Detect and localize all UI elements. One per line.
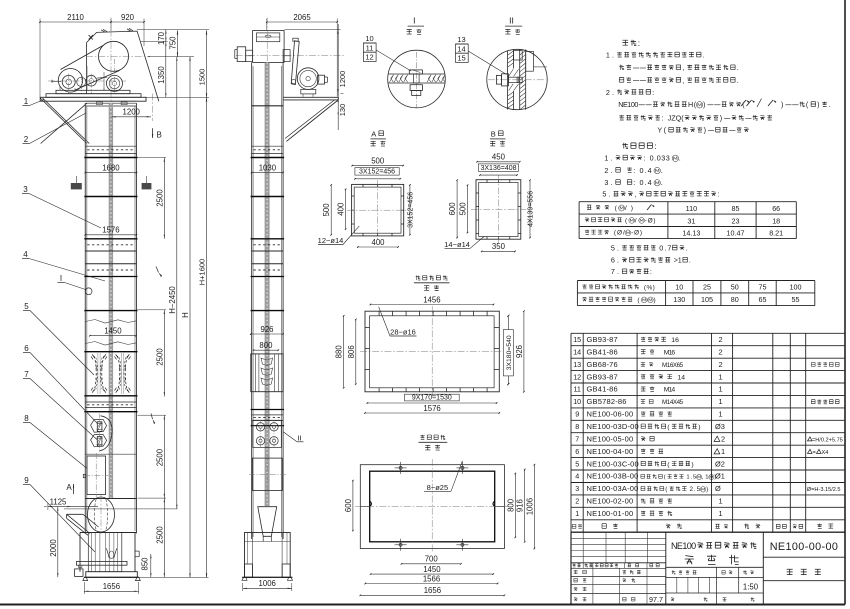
svg-text::: :: [633, 166, 635, 175]
svg-text:=: =: [813, 450, 816, 456]
svg-text:130: 130: [673, 295, 685, 304]
svg-text:1.5: 1.5: [686, 475, 697, 481]
svg-text:9: 9: [24, 476, 29, 485]
svg-text:.: .: [737, 76, 739, 85]
svg-text:B: B: [157, 131, 162, 140]
svg-text:.: .: [686, 244, 688, 253]
svg-text:,: ,: [682, 63, 684, 72]
svg-text:400: 400: [337, 202, 346, 216]
svg-text::: :: [643, 154, 645, 163]
svg-text:JZQ(: JZQ(: [668, 114, 685, 123]
svg-text:2: 2: [718, 335, 722, 344]
svg-text:920: 920: [121, 13, 135, 22]
svg-text:H−2450: H−2450: [168, 286, 177, 314]
svg-text:2500: 2500: [155, 526, 164, 544]
svg-text:110: 110: [686, 204, 697, 213]
svg-text:1: 1: [718, 372, 722, 381]
svg-text:85: 85: [732, 204, 740, 213]
svg-text:NE100-03A-00: NE100-03A-00: [587, 484, 639, 493]
svg-text:23: 23: [732, 216, 740, 225]
svg-text:10: 10: [675, 283, 683, 292]
svg-text:65: 65: [759, 295, 767, 304]
svg-text:55: 55: [792, 295, 800, 304]
svg-text:1: 1: [721, 447, 725, 456]
svg-text:66: 66: [772, 204, 780, 213]
svg-text:926: 926: [515, 345, 524, 358]
svg-text:2: 2: [575, 497, 579, 506]
svg-text:): ): [691, 461, 693, 468]
svg-text:): ): [703, 100, 705, 109]
svg-text:): ): [704, 126, 706, 135]
svg-text:750: 750: [169, 36, 178, 50]
svg-text:II: II: [298, 434, 302, 443]
svg-text:700: 700: [425, 555, 439, 564]
svg-text:3: 3: [23, 185, 28, 194]
svg-text:H+1600: H+1600: [197, 259, 206, 285]
svg-text:M16X65: M16X65: [662, 362, 684, 369]
svg-text:): ): [720, 114, 722, 123]
svg-text:I: I: [60, 274, 62, 283]
svg-text:15: 15: [573, 335, 581, 344]
svg-text:4X139=556: 4X139=556: [528, 191, 535, 227]
svg-text:GB5782-86: GB5782-86: [587, 397, 627, 406]
svg-text:/: /: [625, 205, 627, 212]
svg-text:75: 75: [759, 283, 767, 292]
svg-text:.: .: [737, 63, 739, 72]
svg-text:2065: 2065: [293, 13, 311, 22]
svg-text:8: 8: [575, 422, 579, 431]
svg-text:(Ø/: (Ø/: [614, 230, 625, 237]
svg-text:NE100-01-00: NE100-01-00: [587, 509, 634, 518]
svg-text:6: 6: [575, 447, 579, 456]
svg-text:1656: 1656: [424, 586, 441, 595]
svg-text:I: I: [413, 16, 415, 26]
svg-text:600: 600: [448, 202, 457, 216]
svg-text:(: (: [664, 475, 666, 481]
svg-text:2: 2: [718, 360, 722, 369]
svg-text:400: 400: [371, 238, 385, 247]
svg-text:9X170=1530: 9X170=1530: [412, 395, 452, 402]
svg-text:170: 170: [157, 31, 166, 45]
svg-text:2110: 2110: [67, 13, 84, 22]
svg-text:2: 2: [24, 135, 29, 144]
svg-text:H(: H(: [688, 100, 697, 109]
svg-text:GB68-76: GB68-76: [587, 360, 618, 369]
svg-text:GB41-86: GB41-86: [587, 347, 618, 356]
svg-text:500: 500: [322, 203, 331, 217]
svg-text:,: ,: [682, 76, 684, 85]
svg-text:NE100-06-00: NE100-06-00: [587, 410, 634, 419]
svg-text:31: 31: [687, 216, 695, 225]
svg-text:1450: 1450: [104, 327, 122, 336]
svg-text:6: 6: [24, 344, 29, 353]
svg-text:1:50: 1:50: [743, 583, 759, 592]
svg-text:.: .: [689, 256, 691, 265]
svg-text:926: 926: [260, 325, 273, 334]
svg-text:14.13: 14.13: [682, 229, 700, 238]
svg-text:B: B: [491, 129, 496, 138]
svg-text:1006: 1006: [259, 579, 276, 588]
svg-text:806: 806: [347, 345, 356, 358]
svg-text:2500: 2500: [155, 448, 164, 466]
svg-text:600: 600: [344, 498, 353, 512]
svg-text:8−ø25: 8−ø25: [427, 483, 448, 492]
svg-text::: :: [633, 178, 635, 187]
svg-text:5: 5: [575, 459, 579, 468]
svg-text:80: 80: [731, 295, 739, 304]
svg-text:-Ø): -Ø): [645, 217, 656, 224]
svg-text:2000: 2000: [49, 539, 58, 557]
svg-text:350: 350: [492, 242, 506, 251]
svg-text:/: /: [635, 217, 637, 224]
svg-text:3X136=408: 3X136=408: [480, 165, 516, 172]
svg-text:,1: ,1: [702, 475, 709, 481]
svg-text:3X180=540: 3X180=540: [506, 335, 513, 370]
svg-text:GB93-87: GB93-87: [587, 335, 618, 344]
svg-text:Ø3: Ø3: [715, 422, 725, 431]
svg-text:): ): [817, 100, 819, 109]
svg-text:): ): [706, 486, 708, 493]
svg-text:15: 15: [457, 54, 465, 63]
svg-text:H: H: [181, 312, 190, 318]
svg-text::: :: [650, 267, 652, 276]
svg-text:13: 13: [457, 35, 465, 44]
svg-text:1500: 1500: [197, 69, 206, 86]
svg-text:GB93-87: GB93-87: [587, 372, 618, 381]
svg-text:3: 3: [575, 484, 579, 493]
svg-text:1: 1: [24, 97, 29, 106]
svg-text:500: 500: [371, 156, 385, 165]
svg-text:12−ø14: 12−ø14: [318, 236, 344, 245]
svg-text:18: 18: [772, 216, 780, 225]
svg-text::: :: [652, 88, 654, 97]
svg-text:10.47: 10.47: [727, 229, 745, 238]
svg-text:NE100-00-00: NE100-00-00: [770, 541, 839, 553]
svg-text:Ø=H-3.15/2.5: Ø=H-3.15/2.5: [807, 487, 841, 493]
svg-text:.: .: [679, 154, 681, 163]
svg-text:1: 1: [718, 410, 722, 419]
svg-text:II: II: [509, 16, 514, 26]
svg-text:850: 850: [141, 557, 150, 571]
svg-text::: :: [654, 142, 656, 151]
svg-text:NE100-04-00: NE100-04-00: [587, 447, 634, 456]
svg-text:2: 2: [718, 347, 722, 356]
svg-text:NE100-03C-00: NE100-03C-00: [587, 459, 639, 468]
svg-text:800: 800: [259, 341, 273, 350]
svg-text:1: 1: [718, 397, 722, 406]
svg-text:0.4: 0.4: [640, 166, 652, 175]
svg-text:14: 14: [457, 45, 465, 54]
svg-text:NE100-03D-00: NE100-03D-00: [587, 422, 639, 431]
svg-text:>1: >1: [674, 256, 682, 265]
svg-text:1200: 1200: [123, 108, 141, 117]
svg-text:0.7: 0.7: [659, 244, 671, 253]
svg-text:): ): [631, 205, 633, 212]
svg-text:97.7: 97.7: [649, 595, 663, 604]
svg-text:=H/0.2+5.75: =H/0.2+5.75: [812, 437, 843, 443]
svg-text:GB41-86: GB41-86: [587, 385, 618, 394]
svg-text:Ø: Ø: [715, 484, 721, 493]
svg-text:12: 12: [365, 53, 373, 62]
svg-text:4: 4: [575, 472, 579, 481]
svg-text:1: 1: [718, 497, 722, 506]
svg-text:100: 100: [790, 283, 802, 292]
svg-text:11: 11: [366, 44, 374, 53]
svg-text:NE100-03B-00: NE100-03B-00: [587, 472, 639, 481]
svg-text:): ): [654, 297, 656, 304]
svg-text:1656: 1656: [103, 582, 120, 591]
svg-text:500: 500: [459, 202, 468, 216]
svg-text:(%): (%): [644, 284, 655, 291]
svg-text:4: 4: [23, 250, 28, 259]
svg-text:11: 11: [573, 385, 580, 394]
svg-text:1: 1: [718, 509, 722, 518]
svg-text:9: 9: [575, 410, 579, 419]
svg-text:1566: 1566: [423, 574, 440, 583]
svg-text:1: 1: [575, 509, 579, 518]
svg-text:M16: M16: [664, 349, 676, 356]
svg-text:50: 50: [731, 283, 739, 292]
svg-text:.: .: [661, 166, 663, 175]
svg-text:8.21: 8.21: [769, 229, 783, 238]
svg-text:25: 25: [703, 283, 711, 292]
svg-text:14: 14: [573, 347, 581, 356]
svg-text:14−ø14: 14−ø14: [444, 240, 470, 249]
svg-text:2: 2: [721, 434, 725, 443]
svg-text:Y: Y: [657, 126, 662, 135]
svg-text:12: 12: [573, 372, 581, 381]
svg-text:13: 13: [573, 360, 581, 369]
svg-text:A: A: [371, 129, 376, 138]
svg-text:NE100-05-00: NE100-05-00: [587, 434, 634, 443]
svg-text:NE100: NE100: [671, 541, 696, 551]
svg-text:.: .: [828, 100, 830, 109]
svg-text:3X152=456: 3X152=456: [407, 192, 414, 228]
svg-text:880: 880: [335, 345, 344, 359]
svg-text:Ø1: Ø1: [715, 472, 725, 481]
svg-text:1200: 1200: [338, 71, 347, 88]
svg-text:16: 16: [671, 337, 679, 344]
svg-text:1350: 1350: [157, 66, 166, 84]
svg-text:105: 105: [701, 295, 713, 304]
svg-text:5: 5: [24, 302, 29, 311]
svg-text:10: 10: [573, 397, 581, 406]
svg-text:1030: 1030: [259, 163, 277, 172]
svg-text:1006: 1006: [525, 498, 534, 515]
svg-text:Ø2: Ø2: [715, 459, 725, 468]
svg-text:0.033: 0.033: [650, 154, 670, 163]
svg-text:.: .: [703, 51, 705, 60]
svg-text:130: 130: [338, 104, 347, 117]
svg-text:): ): [698, 424, 700, 431]
svg-text:800: 800: [506, 498, 515, 512]
svg-text:28−ø16: 28−ø16: [390, 328, 416, 337]
svg-text:1: 1: [718, 385, 722, 394]
svg-text:7: 7: [24, 370, 29, 379]
svg-text:1680: 1680: [102, 163, 120, 172]
svg-text:): ): [781, 100, 783, 109]
svg-text:8: 8: [24, 414, 29, 423]
svg-text:2.5: 2.5: [690, 486, 701, 493]
svg-text:X4: X4: [822, 450, 829, 456]
svg-text:0.4: 0.4: [640, 178, 652, 187]
svg-text::: :: [718, 190, 720, 199]
svg-text:.: .: [661, 178, 663, 187]
svg-text:1576: 1576: [423, 404, 440, 413]
svg-text:,: ,: [634, 190, 636, 199]
svg-text:M14: M14: [664, 387, 676, 394]
svg-text:1576: 1576: [102, 226, 119, 235]
svg-text:-Ø): -Ø): [631, 230, 642, 237]
svg-text:450: 450: [492, 153, 506, 162]
svg-text:3X152=456: 3X152=456: [359, 169, 395, 176]
svg-text:M14X45: M14X45: [662, 399, 684, 406]
svg-text:2500: 2500: [155, 348, 164, 366]
svg-text:7: 7: [575, 434, 579, 443]
svg-text:1456: 1456: [423, 295, 440, 304]
svg-text:14: 14: [677, 374, 685, 381]
svg-text:10: 10: [365, 34, 373, 43]
svg-text::: :: [661, 114, 663, 123]
svg-text:NE100: NE100: [618, 100, 638, 109]
svg-text::: :: [638, 39, 640, 48]
svg-text:A: A: [66, 483, 72, 492]
svg-text:916: 916: [516, 499, 525, 512]
svg-text:NE100-02-00: NE100-02-00: [587, 497, 634, 506]
svg-text:2500: 2500: [155, 189, 164, 207]
svg-text:1450: 1450: [423, 565, 441, 574]
svg-text:1125: 1125: [50, 497, 67, 506]
